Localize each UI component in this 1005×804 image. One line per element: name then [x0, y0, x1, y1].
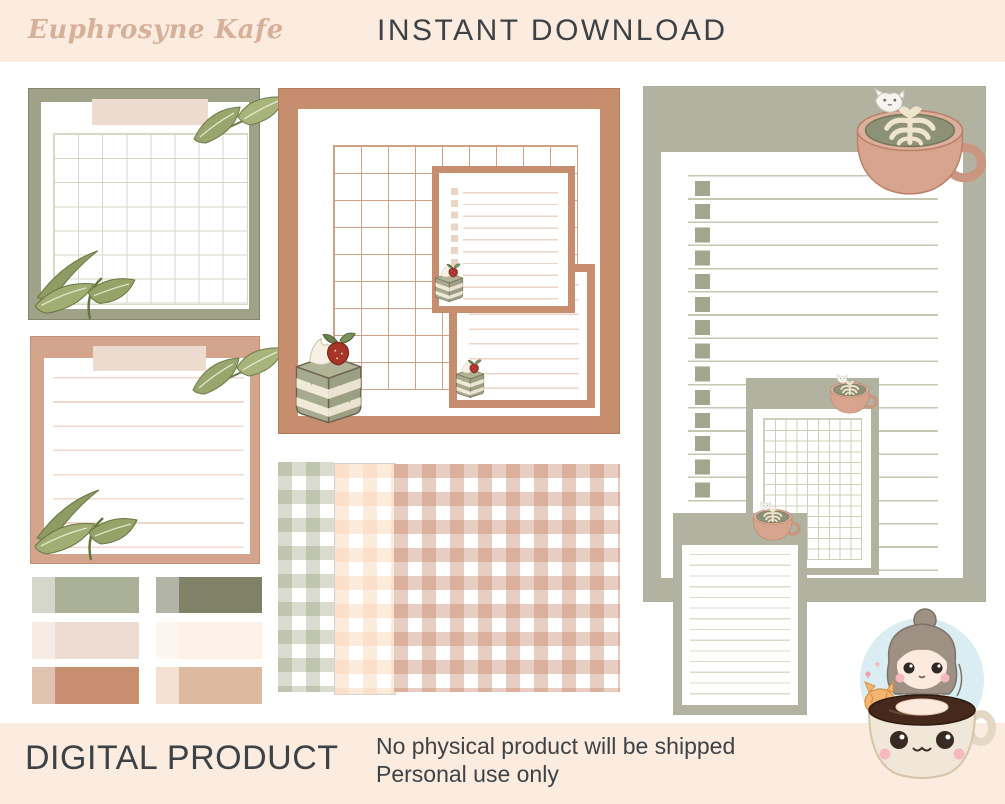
shop-name: Euphrosyne Kafe [28, 15, 284, 45]
shipping-note-line1: No physical product will be shipped [376, 732, 735, 760]
checklist-note-overlay [432, 166, 575, 313]
instant-download-title: INSTANT DOWNLOAD [377, 14, 728, 48]
matcha-cake-illustration [451, 358, 491, 402]
leaf-sprig-icon [33, 245, 151, 323]
header-band: Euphrosyne Kafe INSTANT DOWNLOAD [0, 0, 1005, 62]
leaf-sprig-icon [187, 91, 289, 147]
swatch-light-segment [156, 667, 179, 704]
swatch-dark-segment [55, 622, 139, 659]
product-listing-image: Euphrosyne Kafe INSTANT DOWNLOAD [0, 0, 1005, 804]
checkbox-column [695, 181, 710, 498]
leaf-sprig-icon [187, 342, 287, 398]
ruled-lines [463, 192, 558, 300]
swatch-dark-segment [55, 667, 139, 704]
small-memo-paper [682, 545, 798, 705]
digital-product-label: DIGITAL PRODUCT [25, 739, 339, 778]
leaf-sprig-icon [33, 483, 153, 565]
gingham-sheet-sage [278, 462, 334, 692]
color-palette [32, 577, 262, 704]
swatch-light-segment [32, 667, 55, 704]
ruled-lines [690, 554, 790, 696]
small-memo-note-template [673, 513, 807, 715]
matcha-cake-illustration [283, 329, 378, 433]
matcha-cake-illustration [430, 262, 470, 306]
palette-swatch [156, 577, 262, 613]
swatch-light-segment [156, 622, 179, 659]
palette-swatch [32, 667, 139, 704]
swatch-light-segment [156, 577, 179, 613]
shipping-note-line2: Personal use only [376, 760, 735, 788]
latte-cup-illustration [826, 374, 878, 417]
calendar-note-template [28, 88, 260, 320]
mascot-illustration [841, 604, 1003, 792]
planner-note-template [278, 88, 620, 434]
swatch-light-segment [32, 577, 55, 613]
palette-swatch [156, 667, 262, 704]
palette-swatch [32, 622, 139, 659]
swatch-dark-segment [179, 577, 262, 613]
shipping-note: No physical product will be shipped Pers… [376, 732, 735, 788]
lined-note-template [30, 336, 260, 564]
swatch-dark-segment [55, 577, 139, 613]
swatch-light-segment [32, 622, 55, 659]
palette-swatch [32, 577, 139, 613]
swatch-dark-segment [179, 667, 262, 704]
gingham-sheet-blush [394, 464, 620, 692]
latte-cup-illustration [845, 88, 987, 204]
gingham-sheet-cream [334, 463, 396, 695]
palette-swatch [156, 622, 262, 659]
swatch-dark-segment [179, 622, 262, 659]
latte-cup-illustration [749, 501, 801, 544]
